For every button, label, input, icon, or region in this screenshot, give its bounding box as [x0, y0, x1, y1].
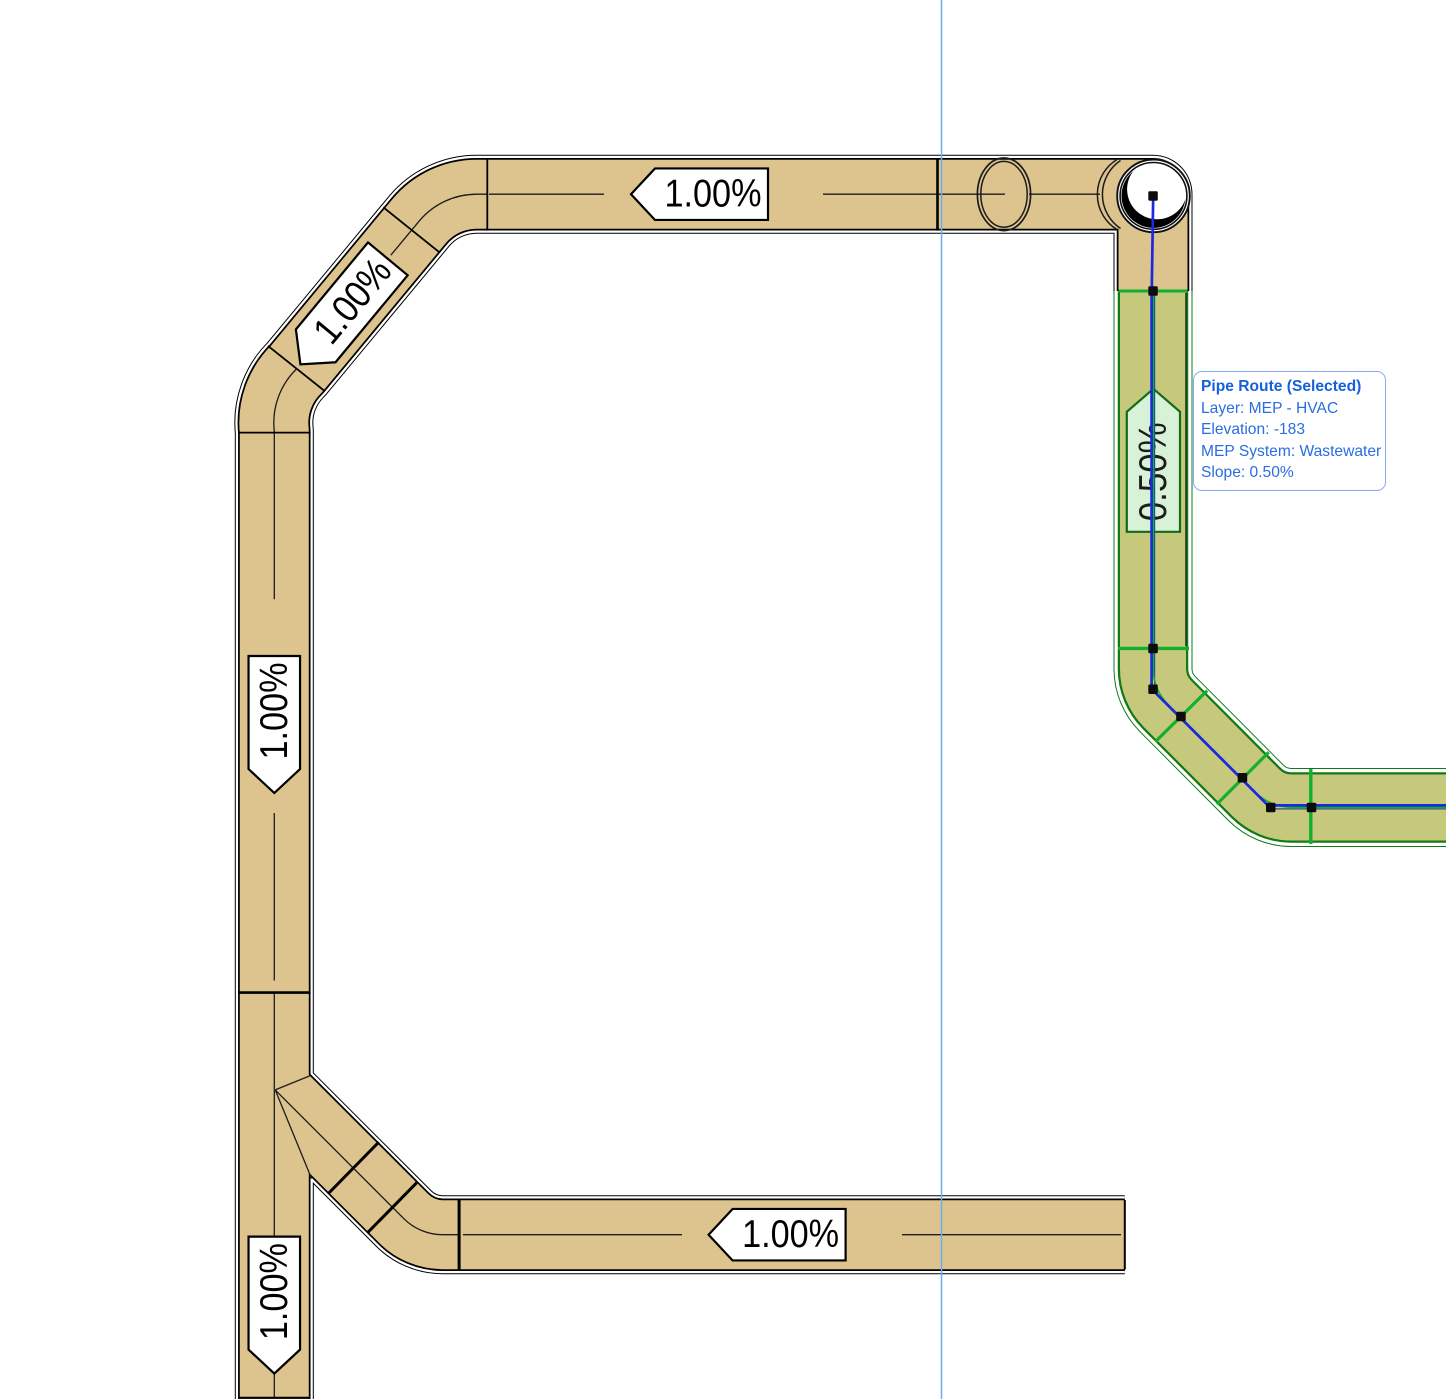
svg-text:1.00%: 1.00% — [742, 1213, 839, 1256]
svg-text:1.00%: 1.00% — [253, 1243, 296, 1340]
svg-text:1.00%: 1.00% — [253, 663, 296, 760]
svg-text:1.00%: 1.00% — [665, 173, 762, 216]
